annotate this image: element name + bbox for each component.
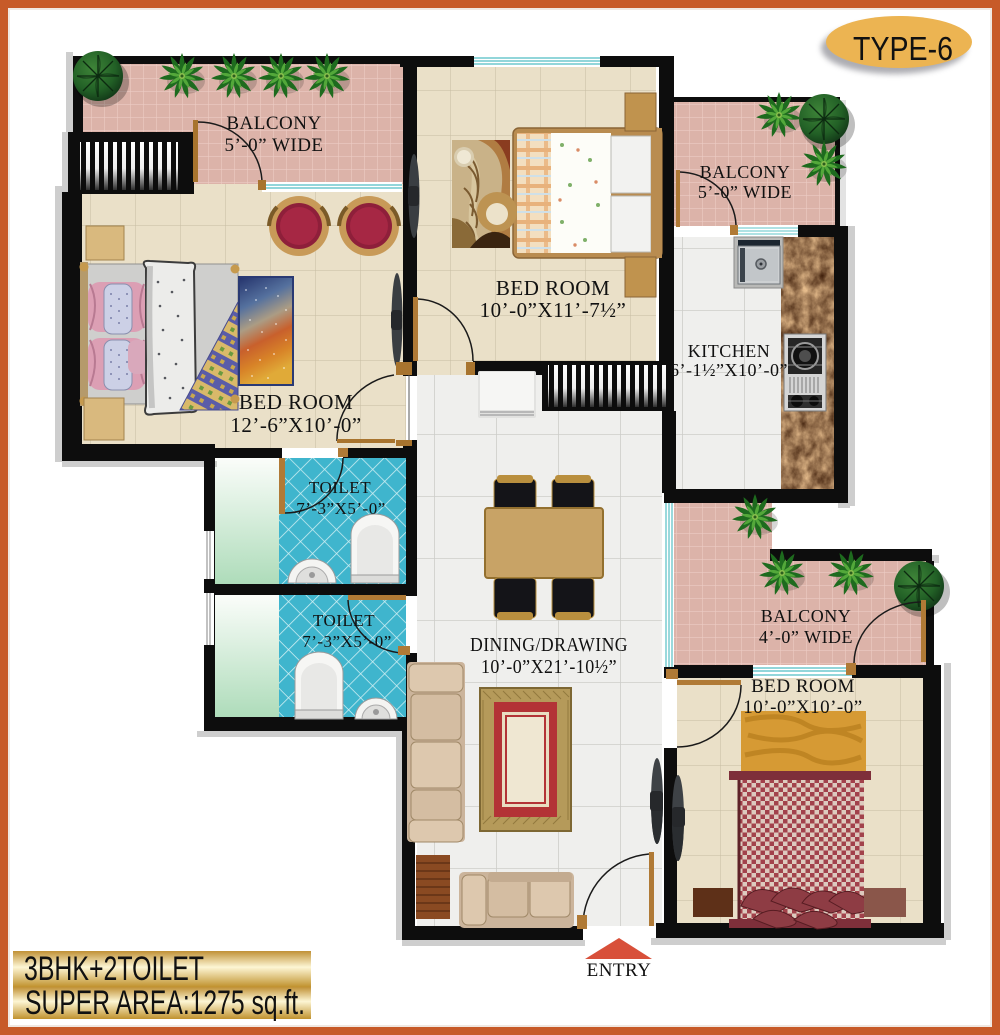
svg-text:5’-0” WIDE: 5’-0” WIDE bbox=[224, 135, 323, 156]
svg-text:ENTRY: ENTRY bbox=[587, 960, 652, 981]
svg-text:BED ROOM: BED ROOM bbox=[751, 676, 855, 697]
svg-text:BALCONY: BALCONY bbox=[761, 606, 852, 626]
svg-text:6’-1½”X10’-0”: 6’-1½”X10’-0” bbox=[670, 360, 788, 380]
svg-text:BALCONY: BALCONY bbox=[700, 162, 791, 182]
svg-text:TOILET: TOILET bbox=[313, 611, 375, 630]
svg-text:7’-3”X5’-0”: 7’-3”X5’-0” bbox=[302, 632, 392, 651]
svg-text:BED ROOM: BED ROOM bbox=[496, 276, 610, 300]
svg-text:10’-0”X11’-7½”: 10’-0”X11’-7½” bbox=[480, 298, 627, 322]
svg-text:TYPE-6: TYPE-6 bbox=[853, 30, 953, 67]
svg-text:7’-3”X5’-0”: 7’-3”X5’-0” bbox=[296, 499, 386, 518]
svg-text:10’-0”X10’-0”: 10’-0”X10’-0” bbox=[743, 697, 862, 718]
svg-text:BALCONY: BALCONY bbox=[226, 113, 321, 134]
svg-text:5’-0” WIDE: 5’-0” WIDE bbox=[698, 182, 792, 202]
svg-text:10’-0”X21’-10½”: 10’-0”X21’-10½” bbox=[481, 656, 617, 678]
svg-text:DINING/DRAWING: DINING/DRAWING bbox=[470, 634, 628, 656]
svg-text:3BHK+2TOILET: 3BHK+2TOILET bbox=[24, 950, 204, 988]
svg-text:12’-6”X10’-0”: 12’-6”X10’-0” bbox=[230, 413, 361, 437]
svg-text:BED ROOM: BED ROOM bbox=[239, 390, 353, 414]
svg-text:SUPER AREA:1275 sq.ft.: SUPER AREA:1275 sq.ft. bbox=[25, 984, 305, 1022]
svg-text:KITCHEN: KITCHEN bbox=[688, 341, 771, 361]
svg-text:4’-0” WIDE: 4’-0” WIDE bbox=[759, 627, 853, 647]
svg-text:TOILET: TOILET bbox=[309, 478, 371, 497]
